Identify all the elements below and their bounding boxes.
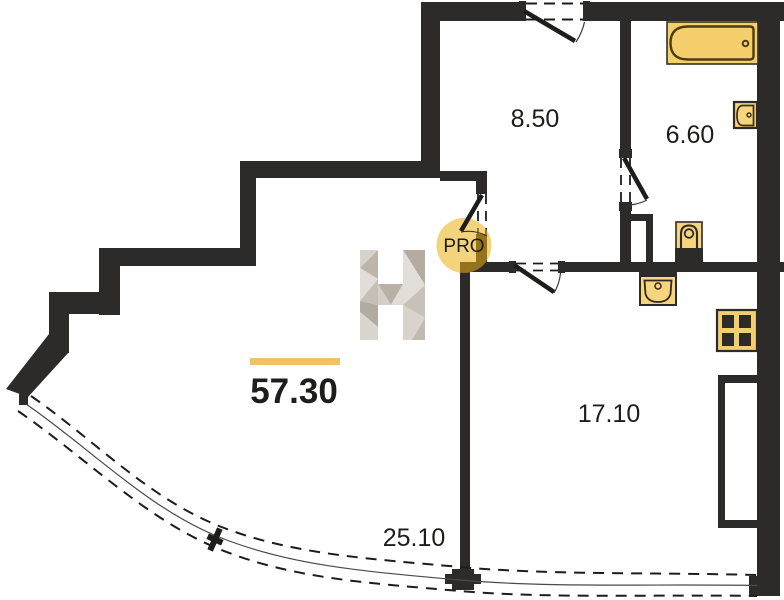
svg-text:17.10: 17.10 — [578, 400, 641, 428]
svg-text:57.30: 57.30 — [250, 372, 338, 411]
svg-text:PRO: PRO — [443, 236, 484, 257]
svg-text:8.50: 8.50 — [511, 105, 560, 133]
svg-text:25.10: 25.10 — [383, 524, 446, 552]
svg-text:6.60: 6.60 — [666, 121, 715, 149]
